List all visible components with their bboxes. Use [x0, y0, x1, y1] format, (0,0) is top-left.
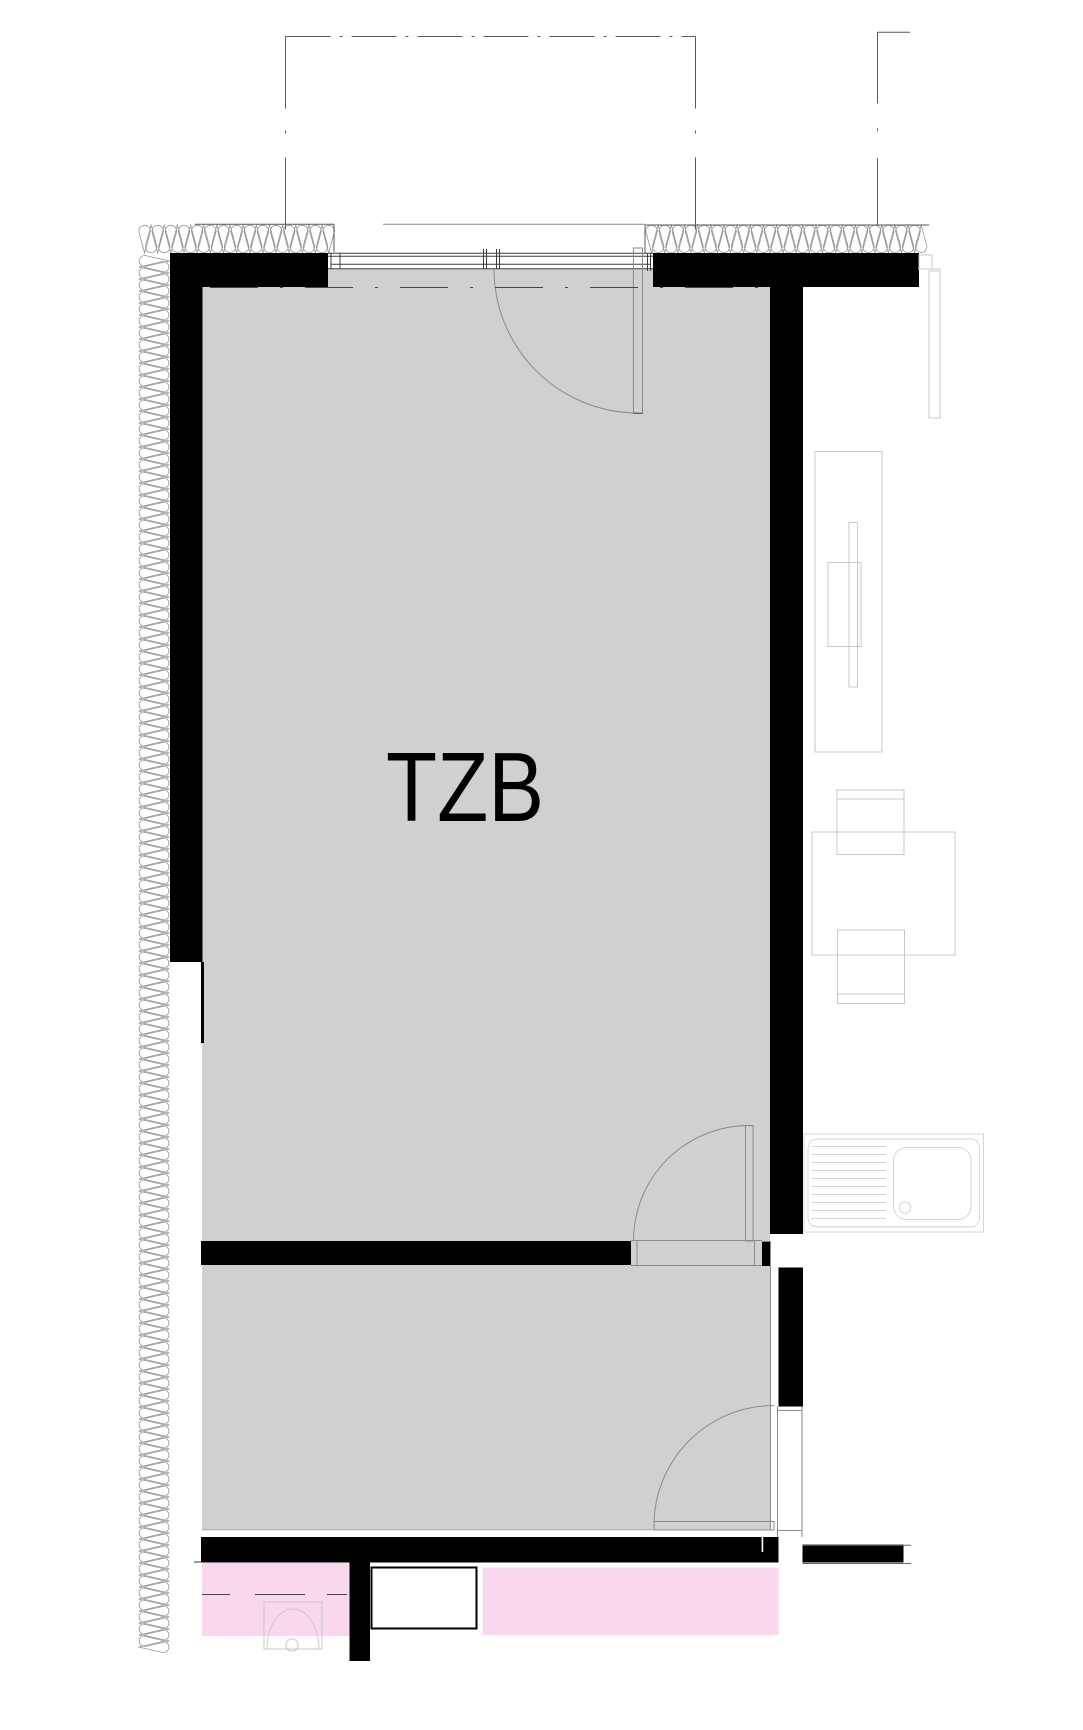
svg-text:TZB: TZB [386, 732, 544, 842]
